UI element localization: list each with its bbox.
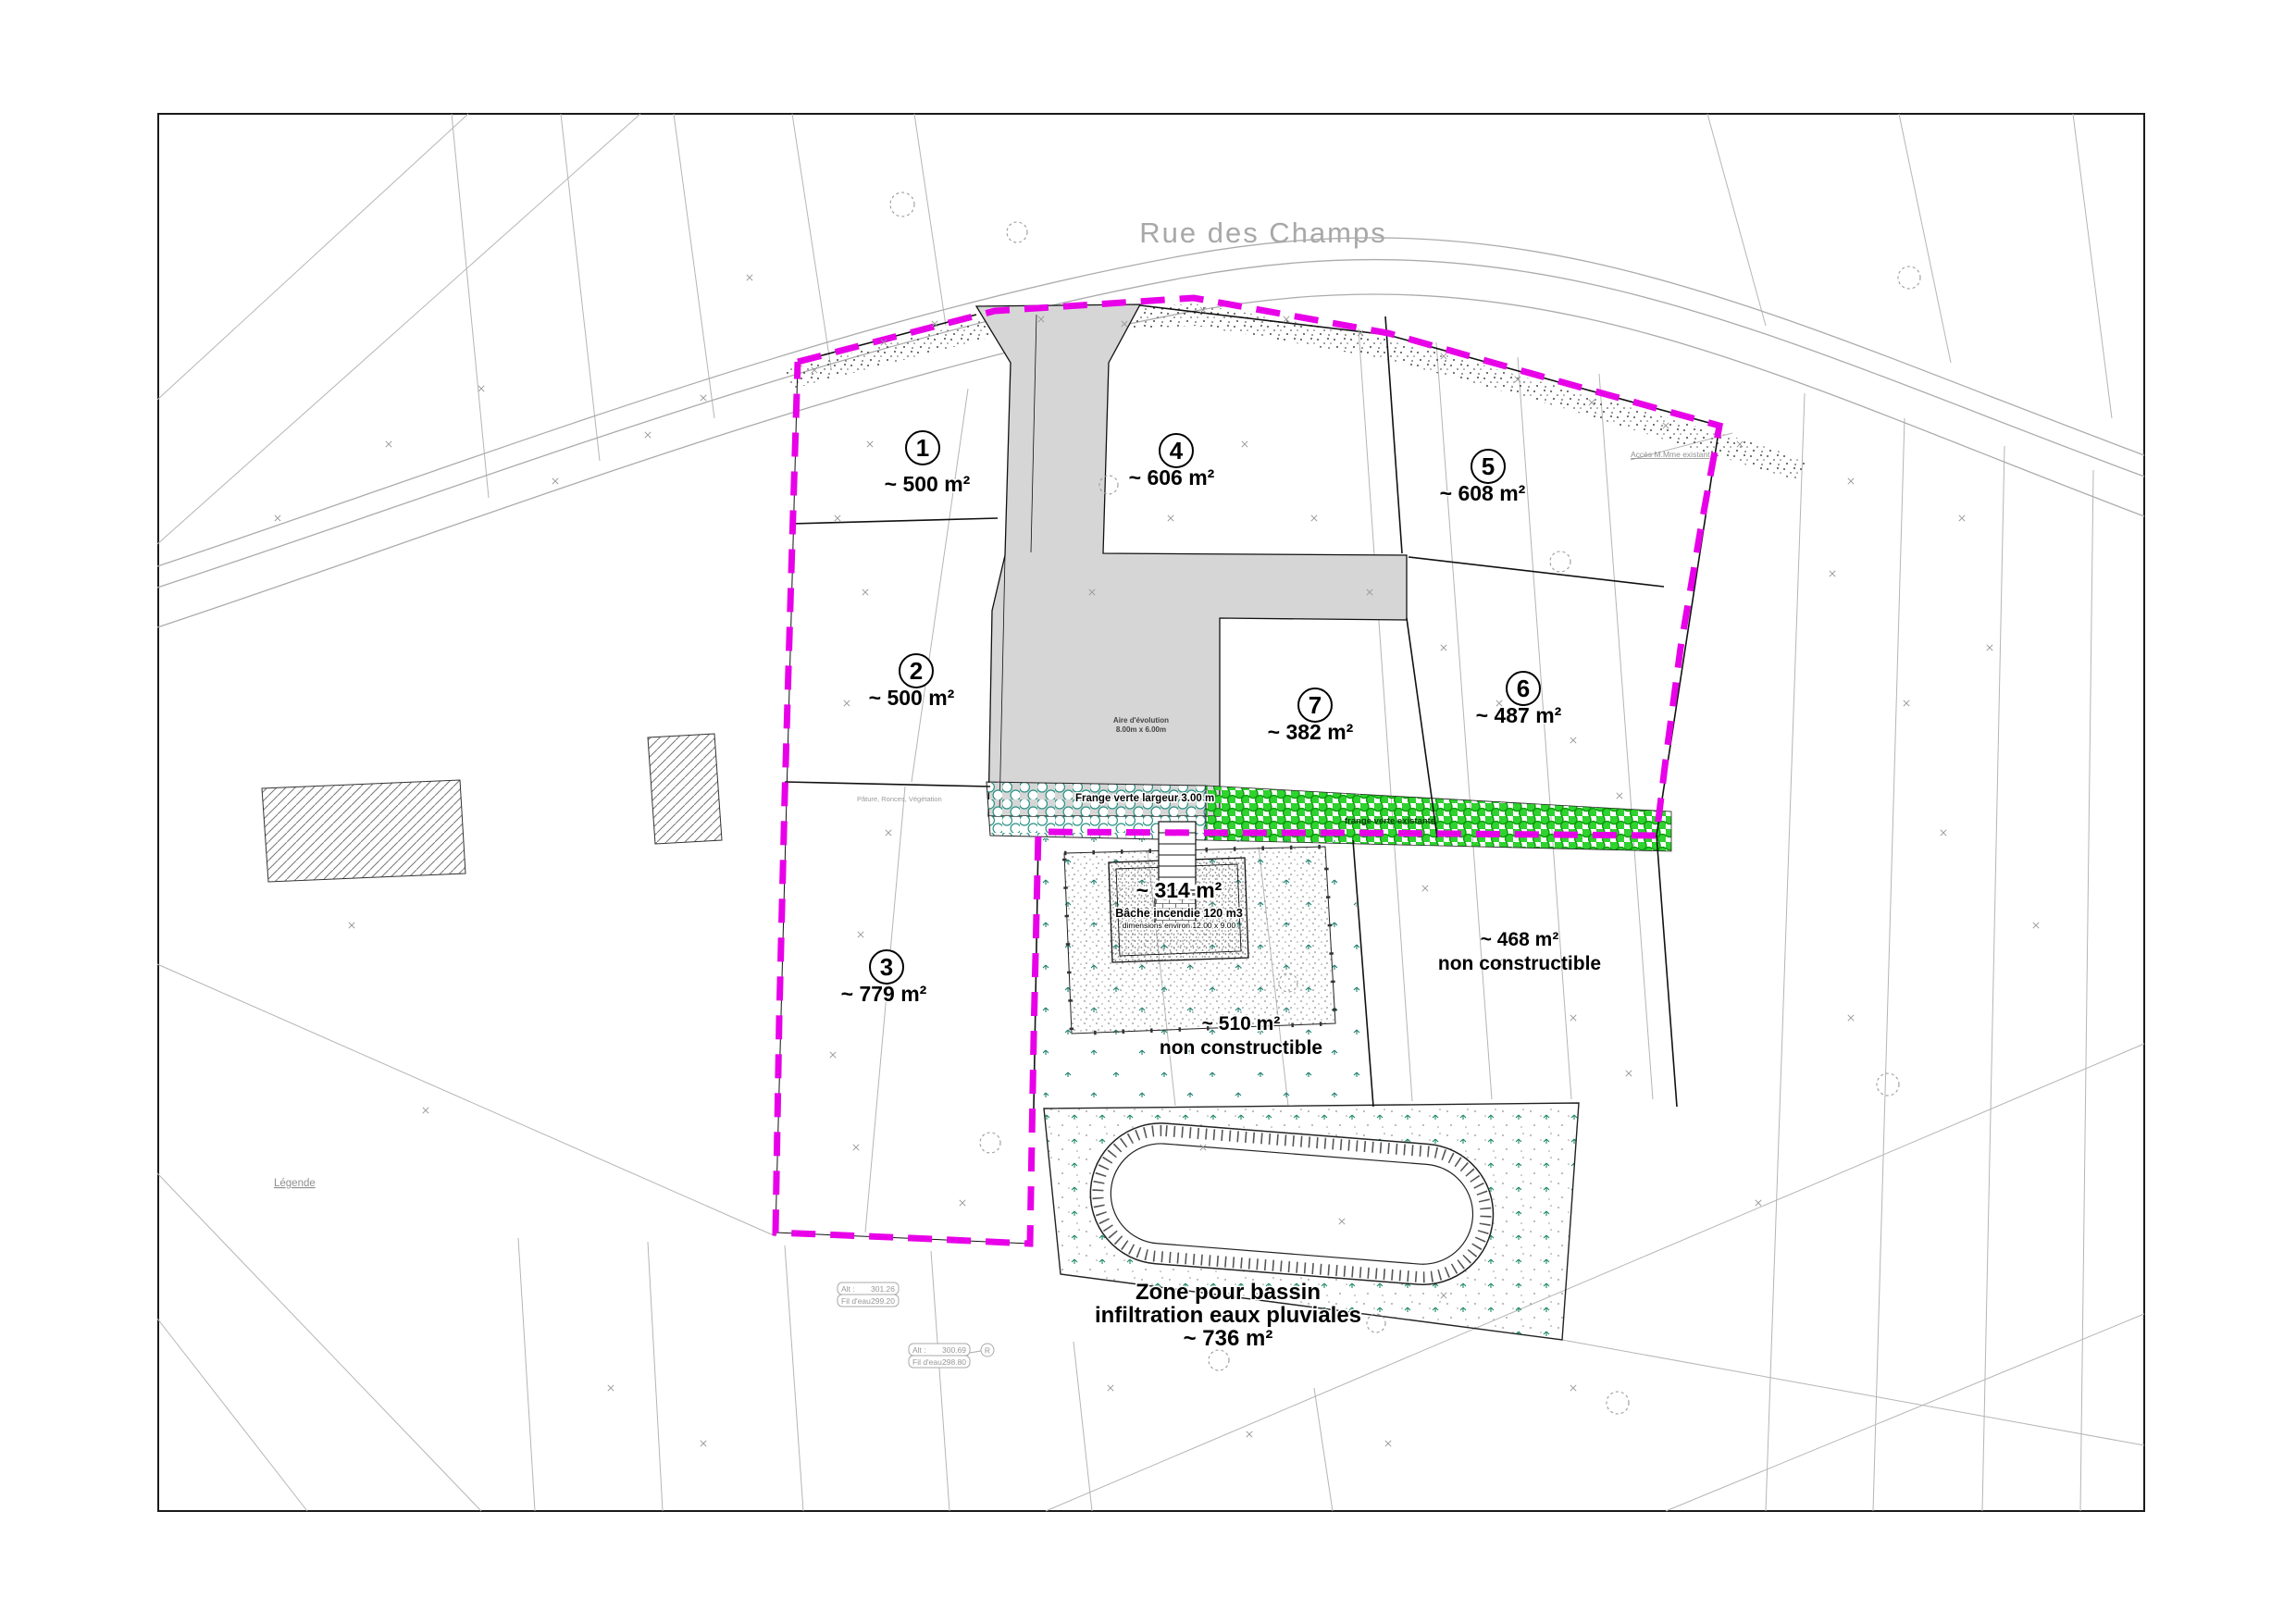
manhole-letter: R (985, 1346, 990, 1356)
parcel-area: ~ 382 m² (1268, 720, 1354, 744)
turning-area-label: Aire d'évolution 8.00m x 6.00m (1113, 716, 1169, 734)
site-plan-page: Alt : 301.26 Fil d'eau : 299.20 Alt : 30… (0, 0, 2296, 1623)
fire-tank-area: ~ 314 m² (1136, 878, 1222, 902)
parcel-6-label: 6 ~ 487 m² (1476, 672, 1562, 727)
parcel-number: 2 (910, 657, 923, 685)
zone-area: ~ 510 m² (1202, 1013, 1281, 1035)
turning-area-line2: 8.00m x 6.00m (1116, 725, 1166, 734)
alt-value: 301.26 (871, 1284, 895, 1294)
green-strip-label: Frange verte largeur 3.00 m (1075, 793, 1214, 804)
parcel-5-label: 5 ~ 608 m² (1440, 450, 1526, 505)
parcel-3-label: 3 ~ 779 m² (841, 950, 927, 1006)
street-name-label: Rue des Champs (1139, 217, 1387, 249)
zone-status: non constructible (1160, 1037, 1322, 1059)
level-table-1: Alt : 301.26 Fil d'eau : 299.20 (838, 1282, 899, 1307)
basin-line2: infiltration eaux pluviales (1095, 1303, 1361, 1328)
parcel-area: ~ 500 m² (885, 472, 971, 496)
alt-label: Alt : (841, 1284, 855, 1294)
parcel-area: ~ 606 m² (1129, 465, 1215, 489)
turning-area-line1: Aire d'évolution (1113, 716, 1169, 725)
parcel-area: ~ 779 m² (841, 982, 927, 1006)
basin-area: ~ 736 m² (1184, 1326, 1273, 1351)
access-note: Accès M.Mme existant (1631, 450, 1710, 459)
parcel-area: ~ 608 m² (1440, 481, 1526, 505)
legend-title: Légende (274, 1178, 316, 1189)
green-hedge-label: frange verte existante (1345, 816, 1435, 826)
parcel-area: ~ 487 m² (1476, 703, 1562, 727)
alt-label: Alt : (912, 1345, 926, 1355)
alt-value: 300.69 (942, 1345, 966, 1355)
level-table-2: Alt : 300.69 Fil d'eau : 298.80 (909, 1344, 970, 1368)
basin-line1: Zone pour bassin (1136, 1280, 1321, 1305)
fire-tank-dims: dimensions environ 12.00 x 9.00 (1123, 921, 1236, 930)
parcel-number: 6 (1517, 675, 1530, 702)
parcel-4-label: 4 ~ 606 m² (1129, 434, 1215, 489)
terrain-note: Pâture, Ronces, Végétation (857, 795, 942, 803)
manhole-symbol: R (970, 1344, 994, 1357)
zone-468-label: ~ 468 m² non constructible (1438, 929, 1601, 974)
parcel-number: 3 (880, 953, 893, 981)
zone-status: non constructible (1438, 953, 1601, 974)
existing-buildings-hatched (262, 734, 722, 882)
parcel-number: 4 (1170, 437, 1184, 465)
parcel-2-label: 2 ~ 500 m² (869, 654, 955, 710)
zone-area: ~ 468 m² (1481, 929, 1559, 950)
fe-value: 298.80 (942, 1357, 966, 1367)
parcel-number: 1 (916, 434, 929, 462)
parcel-number: 5 (1482, 452, 1495, 480)
site-plan-drawing: Alt : 301.26 Fil d'eau : 299.20 Alt : 30… (0, 0, 2296, 1623)
fe-value: 299.20 (871, 1296, 895, 1306)
parcel-number: 7 (1309, 691, 1322, 719)
parcel-7-label: 7 ~ 382 m² (1268, 688, 1354, 744)
fire-tank-title: Bâche incendie 120 m3 (1115, 907, 1243, 920)
parcel-area: ~ 500 m² (869, 686, 955, 710)
